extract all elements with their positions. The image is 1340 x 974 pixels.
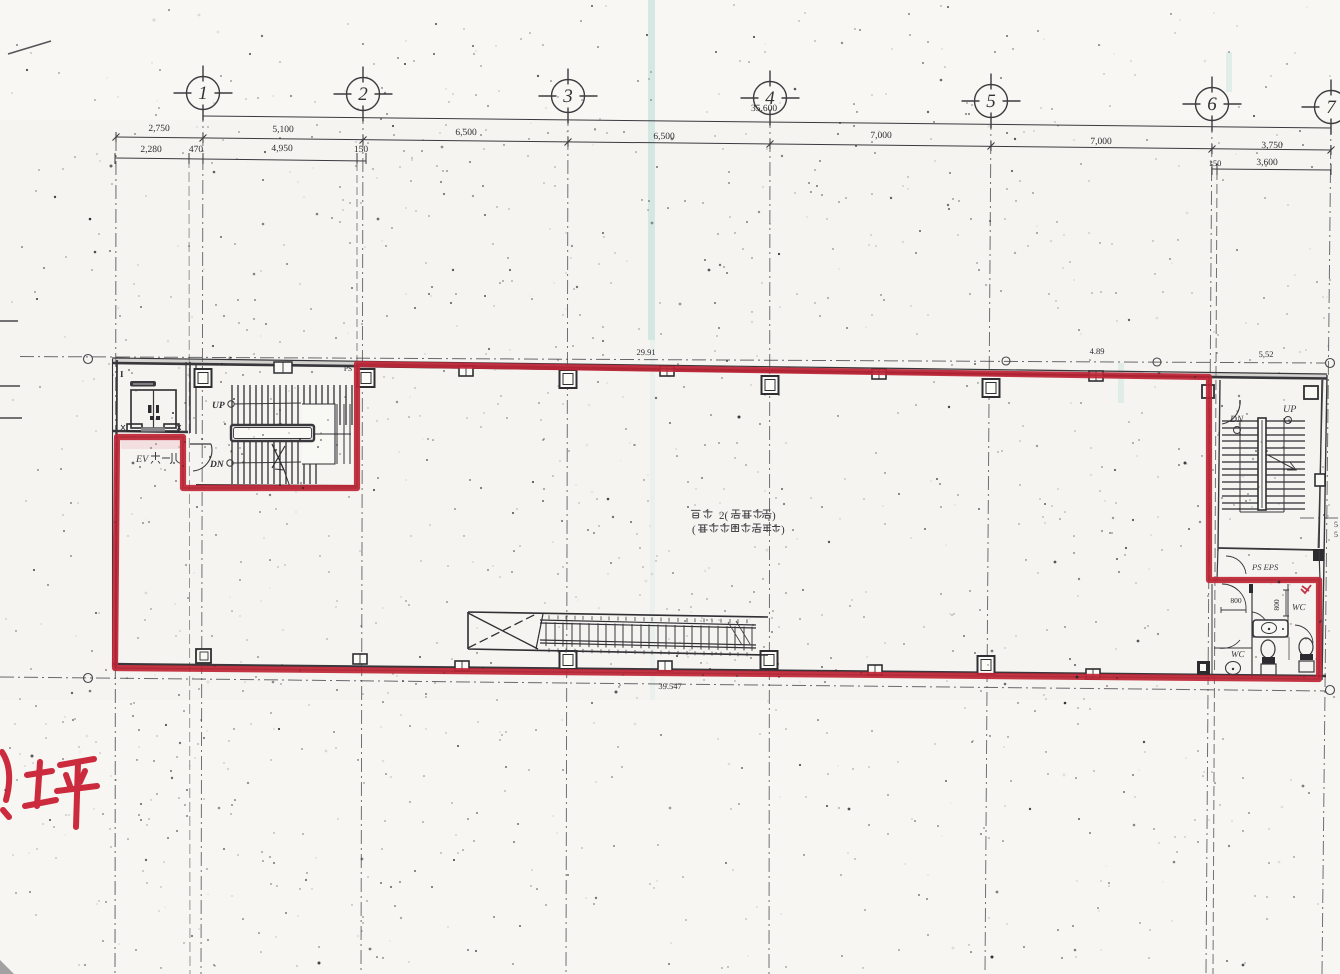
svg-text:4: 4 [765,88,775,109]
svg-text:WC: WC [1231,649,1245,659]
svg-text:5: 5 [1334,530,1338,539]
svg-text:5: 5 [986,91,996,112]
svg-text:5: 5 [1334,520,1338,529]
svg-text:29.91: 29.91 [636,347,655,357]
svg-text:I: I [120,369,124,379]
svg-text:1: 1 [198,83,208,104]
svg-text:3,750: 3,750 [1261,141,1283,151]
svg-text:5,100: 5,100 [272,125,294,135]
svg-text:470: 470 [189,145,204,155]
svg-text:(: ( [692,524,696,536]
svg-text:2: 2 [358,84,368,105]
svg-text:UP: UP [212,401,225,411]
svg-text:EV: EV [135,454,150,465]
svg-text:800: 800 [1230,596,1242,605]
svg-text:DN: DN [209,460,225,470]
svg-text:6,500: 6,500 [653,132,675,142]
svg-text:): ) [781,524,785,536]
svg-text:UP: UP [1283,404,1296,415]
svg-text:PS EPS: PS EPS [1251,562,1279,572]
svg-text:150: 150 [354,145,369,155]
svg-text:2,750: 2,750 [148,124,170,134]
svg-text:7,000: 7,000 [870,131,892,141]
svg-text:39.547: 39.547 [658,681,681,691]
svg-text:7,000: 7,000 [1090,137,1112,147]
svg-text:6,500: 6,500 [455,128,477,138]
svg-text:7: 7 [1326,97,1337,118]
svg-text:6: 6 [1207,94,1217,115]
svg-text:5,52: 5,52 [1259,349,1274,359]
svg-text:3: 3 [562,86,573,107]
svg-text:WC: WC [1292,602,1306,612]
svg-text:2(: 2( [719,510,729,522]
svg-text:): ) [772,510,776,522]
svg-text:800: 800 [1272,599,1281,611]
svg-text:4,950: 4,950 [271,144,293,154]
svg-text:2,280: 2,280 [140,145,162,155]
svg-text:150: 150 [1209,158,1222,168]
svg-text:PS: PS [344,364,352,373]
svg-text:3,600: 3,600 [1256,158,1278,168]
svg-text:4.89: 4.89 [1090,346,1105,356]
